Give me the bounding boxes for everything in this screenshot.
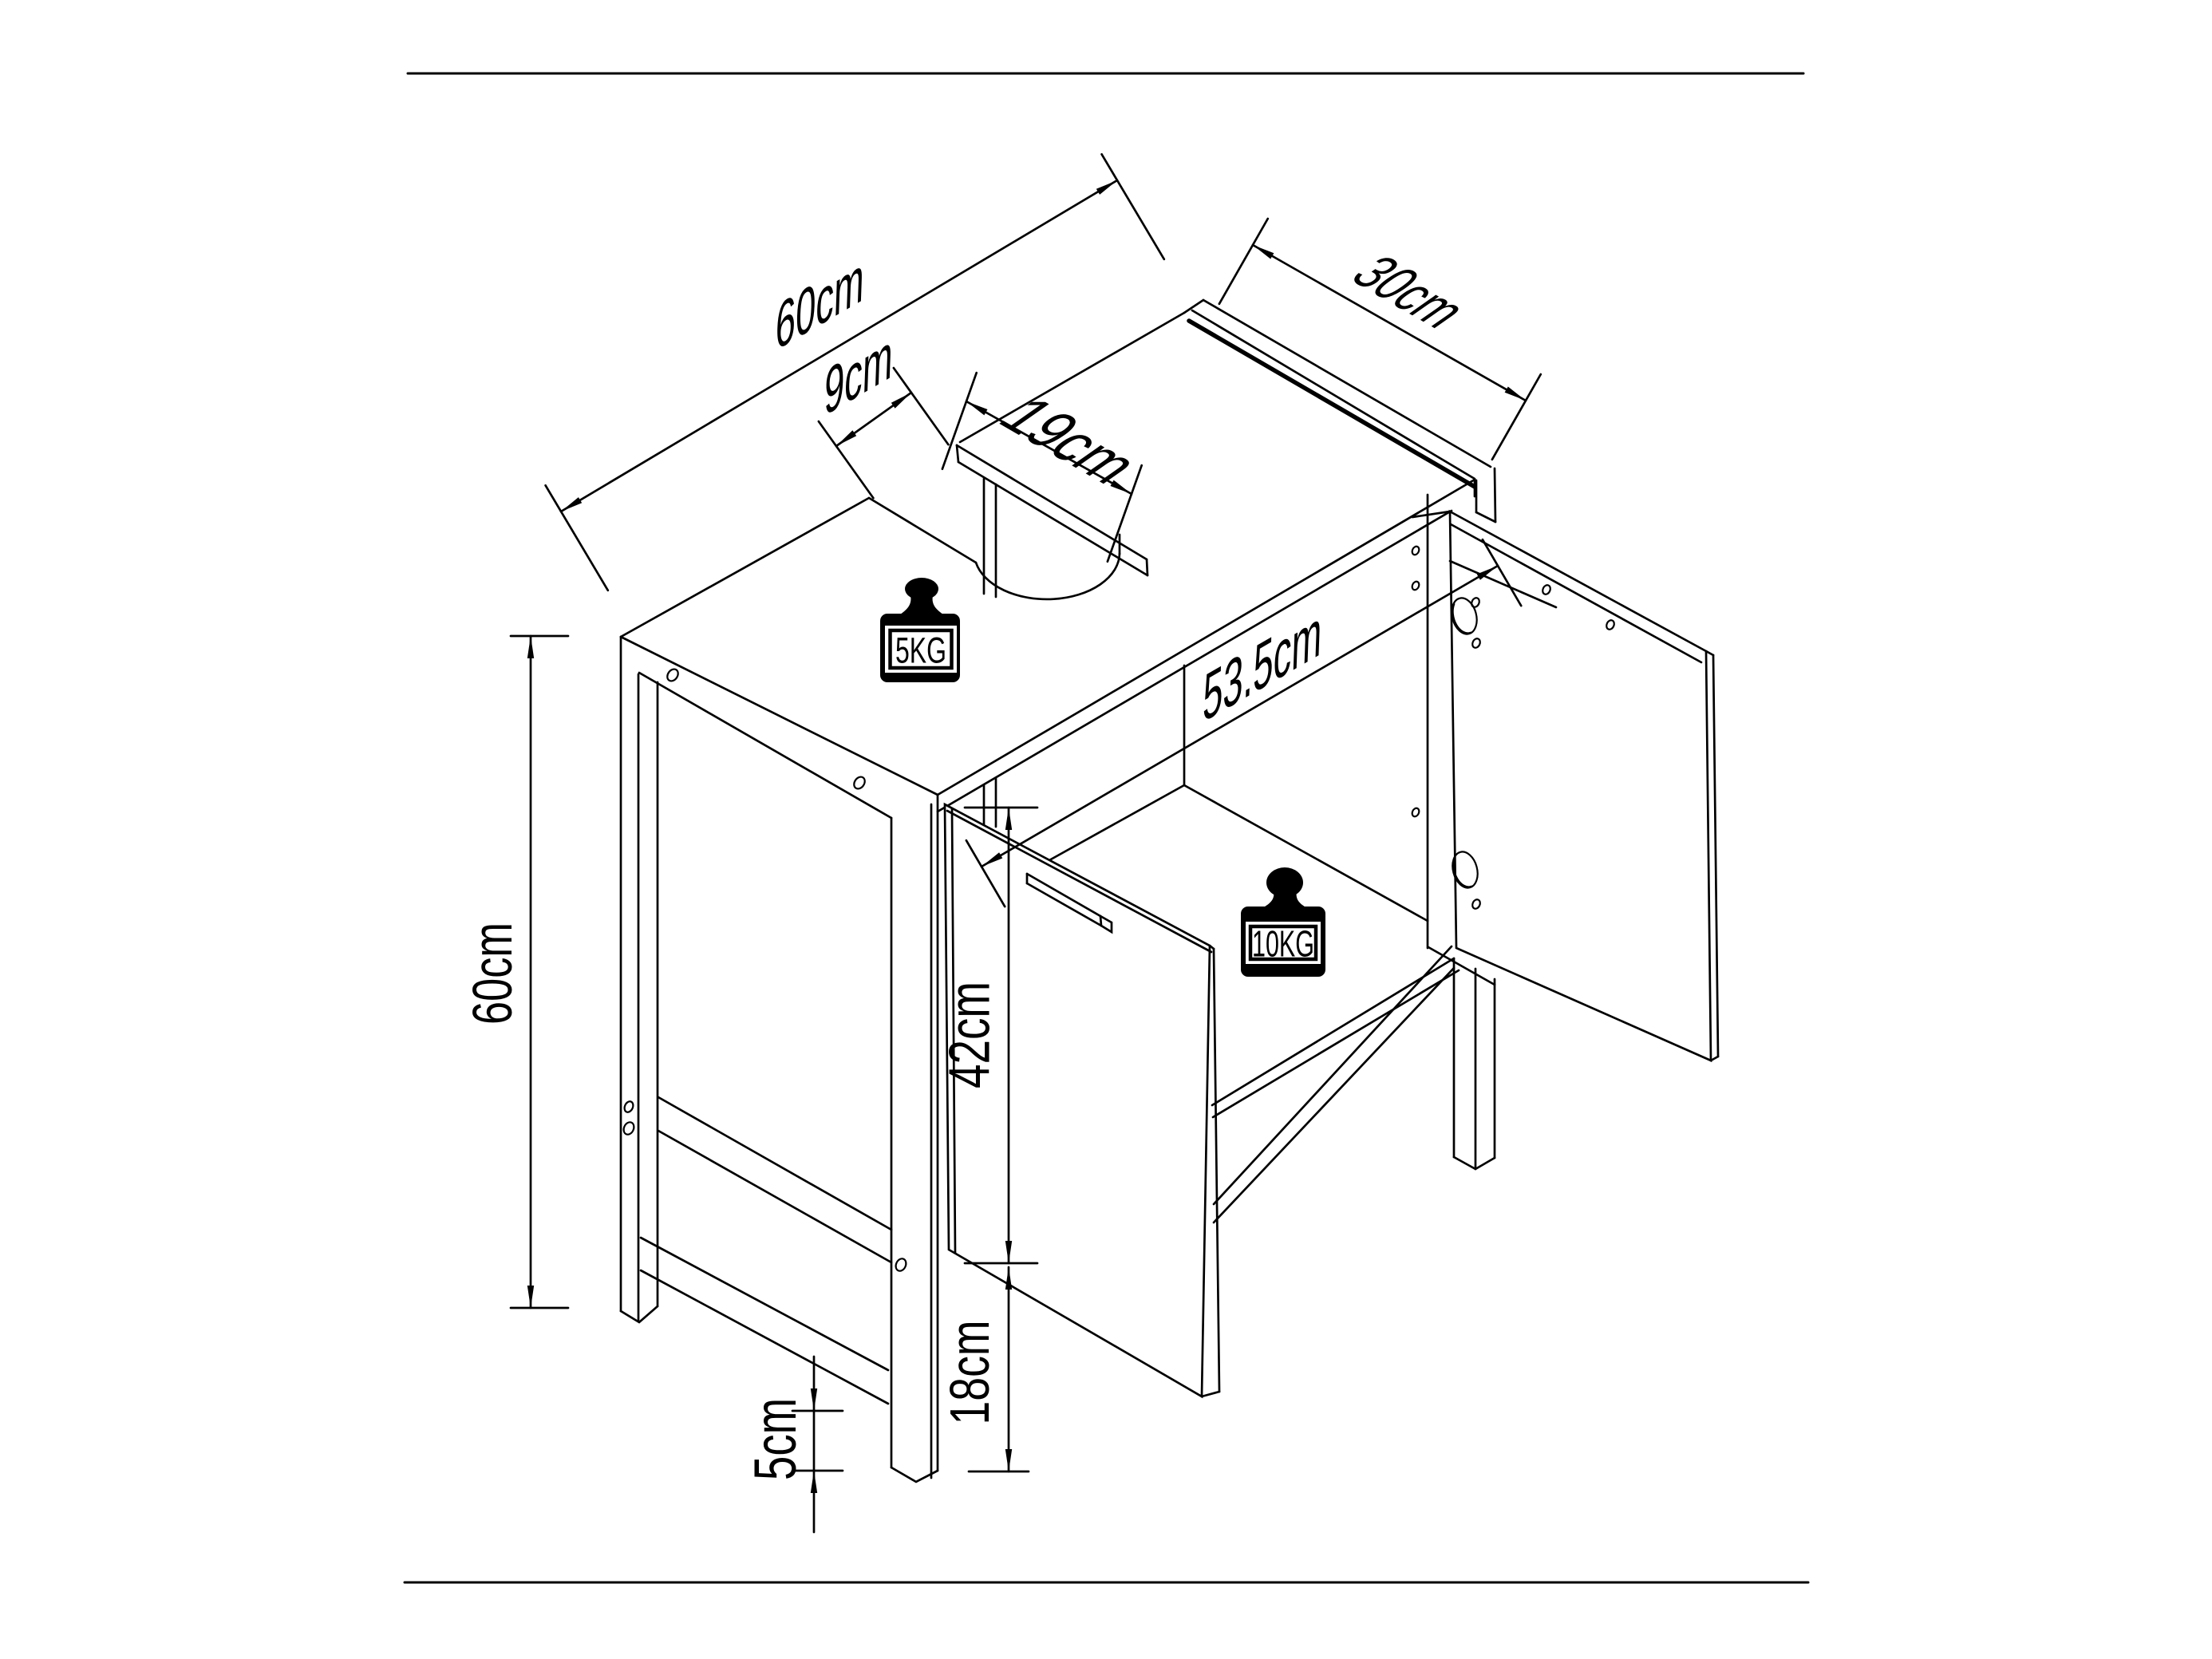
svg-text:5cm: 5cm bbox=[742, 1398, 808, 1480]
svg-text:60cm: 60cm bbox=[461, 922, 523, 1025]
svg-text:18cm: 18cm bbox=[938, 1321, 1001, 1425]
svg-text:10KG: 10KG bbox=[1252, 923, 1314, 965]
svg-text:42cm: 42cm bbox=[938, 982, 1002, 1088]
svg-text:5KG: 5KG bbox=[895, 630, 946, 671]
